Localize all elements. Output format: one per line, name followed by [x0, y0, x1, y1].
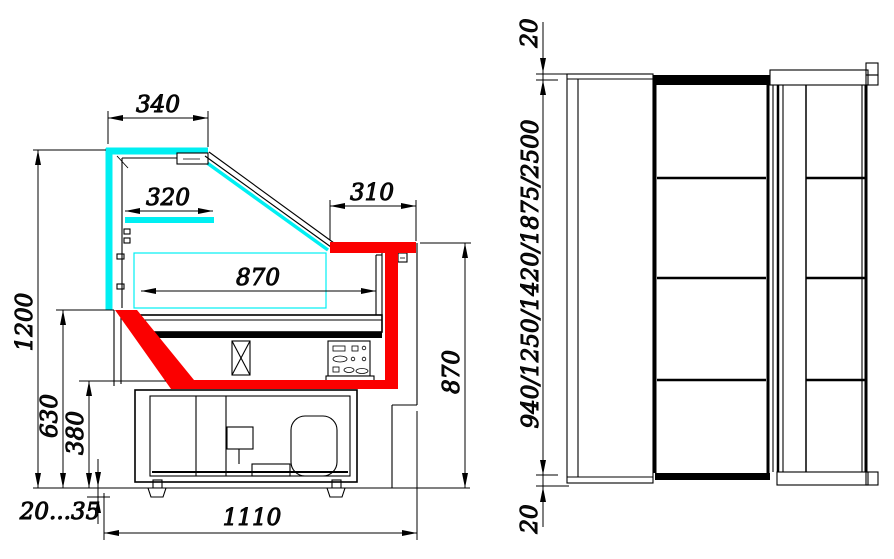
- machine-compartment: [135, 390, 357, 482]
- dim-deck-width: 870: [236, 265, 280, 291]
- drawing-canvas: 340 320 310 870 1200 630 380: [0, 0, 894, 559]
- cross-section-view: 340 320 310 870 1200 630 380: [12, 92, 471, 540]
- dim-front-height: 870: [439, 350, 465, 394]
- lamp-housing: [177, 153, 208, 164]
- control-panel: [326, 341, 374, 381]
- plan-front-bottom-band: [777, 472, 868, 485]
- plan-view: 20 940/1250/1420/1875/2500 20: [517, 18, 878, 534]
- technical-drawing: 340 320 310 870 1200 630 380: [0, 0, 894, 559]
- plan-structure: [567, 63, 878, 485]
- dim-canopy-depth: 340: [136, 92, 180, 118]
- dim-bottom-overhang: 20: [517, 504, 543, 534]
- dim-overall-height: 1200: [12, 293, 38, 352]
- dim-leg-range: 20...35: [19, 499, 100, 525]
- plan-mid-top-band: [653, 75, 770, 85]
- dim-base-top-height: 380: [63, 411, 89, 455]
- plan-mid-bottom-band: [655, 473, 770, 480]
- plan-front-top-band: [770, 70, 868, 85]
- dim-countertop-depth: 310: [350, 180, 394, 206]
- display-deck: [136, 315, 382, 332]
- dim-shelf-depth: 320: [146, 185, 190, 211]
- interior-liner: [134, 253, 326, 308]
- dim-glass-bottom-height: 630: [37, 394, 63, 438]
- red-front-stem: [385, 253, 398, 381]
- plan-rear-counter: [567, 74, 653, 483]
- dim-length-options: 940/1250/1420/1875/2500: [518, 119, 544, 428]
- glass-panels: [106, 148, 328, 310]
- dim-base-depth: 1110: [223, 505, 282, 531]
- front-slope-glass: [203, 160, 328, 250]
- red-counter-top: [330, 242, 416, 253]
- plan-dimensions: 20 940/1250/1420/1875/2500 20: [517, 18, 569, 534]
- dim-top-overhang: 20: [517, 18, 543, 48]
